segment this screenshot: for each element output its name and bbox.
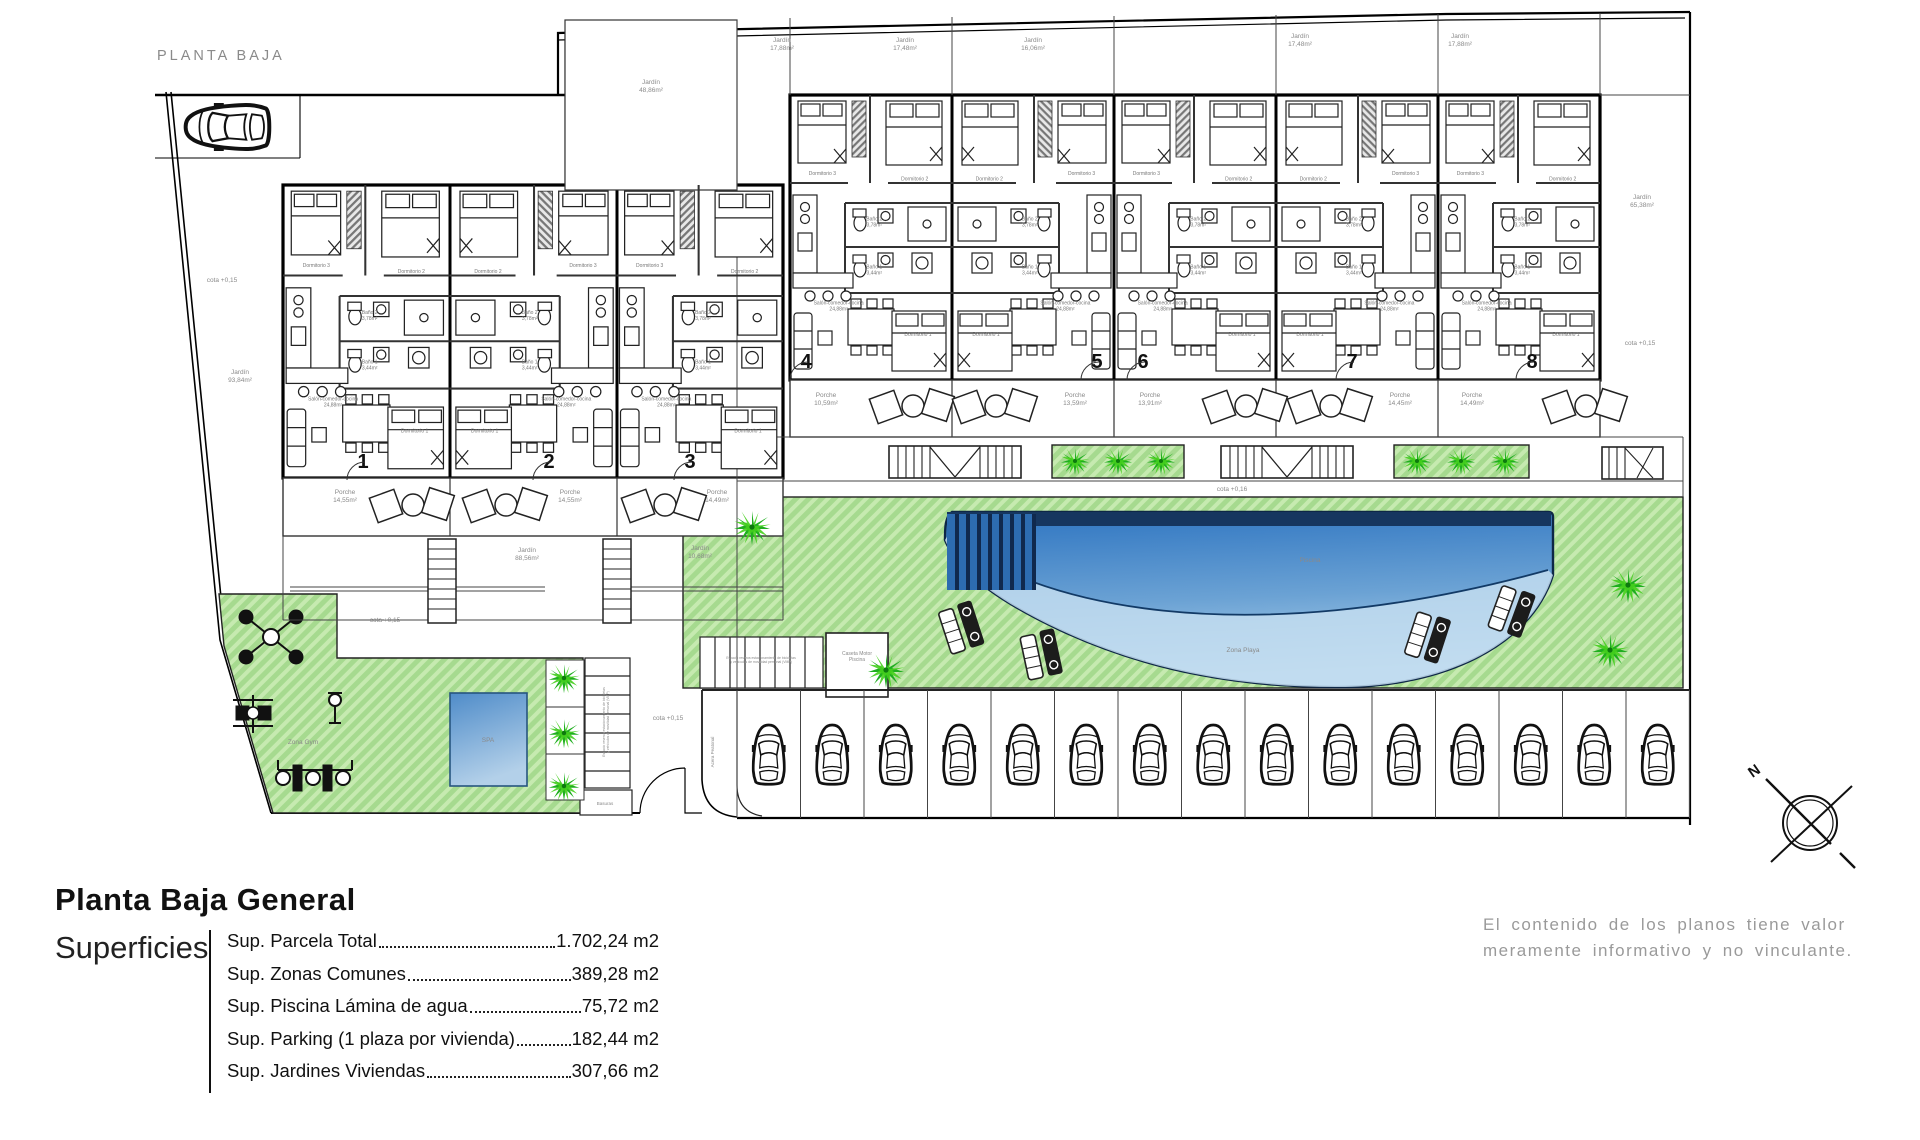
parked-car <box>1069 725 1103 784</box>
annotation-label: Jardín17,88m² <box>770 37 795 52</box>
room-label: Baño 23,78m² <box>1190 216 1206 228</box>
superficies-item: Sup. Piscina Lámina de agua75,72 m2 <box>227 995 659 1017</box>
superficies-list: Sup. Parcela Total 1.702,24 m2Sup. Zonas… <box>227 928 659 1093</box>
annotation-label: Jardín17,48m² <box>893 37 918 52</box>
parked-car <box>879 725 913 784</box>
garden-stair <box>428 539 456 623</box>
parked-car <box>752 725 786 784</box>
room-label: Dormitorio 2 <box>731 269 758 275</box>
room-label: Dormitorio 2 <box>901 177 928 183</box>
room-label: Dormitorio 3 <box>1457 171 1484 177</box>
parked-car <box>1323 725 1357 784</box>
superficies-item: Sup. Jardines Viviendas307,66 m2 <box>227 1060 659 1082</box>
room-label: Dormitorio 2 <box>1225 177 1252 183</box>
superficies-heading: Superficies <box>55 928 205 1093</box>
annotation-label: cota +0,15 <box>207 277 238 284</box>
annotation-label: Porche14,49m² <box>1460 392 1485 407</box>
annotation-label: Zona Playa <box>1227 647 1260 654</box>
room-label: Dormitorio 3 <box>1392 171 1419 177</box>
room-label: Baño 23,78m² <box>522 310 538 322</box>
annotation-label: Espacio reserva estacionamiento de bicic… <box>726 656 796 664</box>
annotation-label: Jardín16,06m² <box>1021 37 1046 52</box>
room-label: Dormitorio 3 <box>1133 171 1160 177</box>
room-label: Dormitorio 3 <box>809 171 836 177</box>
parked-car <box>1450 725 1484 784</box>
superficies-item-label: Sup. Parking (1 plaza por vivienda) <box>227 1028 515 1050</box>
room-label: Baño 23,78m² <box>362 310 378 322</box>
room-label: Dormitorio 1 <box>734 429 761 435</box>
room-label: Baño 23,78m² <box>1346 216 1362 228</box>
room-label: Dormitorio 1 <box>904 332 931 338</box>
garden-common-left <box>219 594 583 813</box>
annotation-label: Jardín17,88m² <box>1448 33 1473 48</box>
superficies-item-label: Sup. Jardines Viviendas <box>227 1060 425 1082</box>
dotted-leader <box>427 1076 570 1078</box>
annotation-label: Espacio reserva estacionamiento de bicic… <box>602 687 610 757</box>
room-label: Dormitorio 2 <box>474 269 501 275</box>
dotted-leader <box>470 1011 581 1013</box>
annotation-label: cota +0,15 <box>653 715 684 722</box>
superficies-item-value: 1.702,24 m2 <box>556 930 659 952</box>
plan-title: Planta Baja General <box>55 882 659 918</box>
annotation-label: Porche14,55m² <box>333 489 358 504</box>
room-label: Dormitorio 3 <box>636 263 663 269</box>
superficies-item-label: Sup. Piscina Lámina de agua <box>227 995 468 1017</box>
room-label: Baño 13,44m² <box>1346 265 1362 277</box>
parked-car <box>815 725 849 784</box>
annotation-label: Porche10,59m² <box>814 392 839 407</box>
room-label: Dormitorio 3 <box>569 263 596 269</box>
parked-car <box>1196 725 1230 784</box>
divider <box>209 930 211 1093</box>
annotation-label: Basuras <box>597 801 614 806</box>
room-label: Baño 13,44m² <box>1190 265 1206 277</box>
parked-car <box>1133 725 1167 784</box>
annotation-label: Zona Gym <box>288 739 318 746</box>
room-label: Dormitorio 2 <box>1300 177 1327 183</box>
parked-car <box>1641 725 1675 784</box>
parked-car <box>1577 725 1611 784</box>
annotation-label: Porche14,55m² <box>558 489 583 504</box>
room-label: Dormitorio 3 <box>303 263 330 269</box>
plan-caption: PLANTA BAJA <box>157 48 285 64</box>
title-block: Planta Baja General Superficies Sup. Par… <box>55 882 659 1093</box>
disclaimer-line-2: meramente informativo y no vinculante. <box>1483 938 1873 964</box>
room-label: Dormitorio 1 <box>1296 332 1323 338</box>
superficies-item: Sup. Parcela Total 1.702,24 m2 <box>227 930 659 952</box>
parked-car <box>1387 725 1421 784</box>
annotation-label: Acera Peatonal <box>710 737 715 768</box>
room-label: Baño 13,44m² <box>522 360 538 372</box>
room-label: Baño 23,78m² <box>1022 216 1038 228</box>
annotation-label: Piscina <box>1300 557 1321 564</box>
parked-car <box>1514 725 1548 784</box>
superficies-item-value: 75,72 m2 <box>582 995 659 1017</box>
dotted-leader <box>517 1044 571 1046</box>
room-label: Dormitorio 1 <box>1552 332 1579 338</box>
annotation-label: cota +0,15 <box>370 617 401 624</box>
pool-steps <box>947 514 1035 590</box>
pool-motor-shed <box>826 633 888 697</box>
room-label: Baño 23,78m² <box>866 216 882 228</box>
superficies-item-value: 389,28 m2 <box>572 963 659 985</box>
annotation-label: cota +0,16 <box>1217 486 1248 493</box>
car-icon <box>186 103 270 151</box>
room-label: Baño 23,78m² <box>695 310 711 322</box>
parked-car <box>942 725 976 784</box>
room-label: Baño 13,44m² <box>1022 265 1038 277</box>
superficies-item-label: Sup. Parcela Total <box>227 930 377 952</box>
parked-car <box>1006 725 1040 784</box>
annotation-label: SPA <box>482 737 495 744</box>
room-label: Baño 13,44m² <box>866 265 882 277</box>
annotation-label: Jardín88,56m² <box>515 547 540 562</box>
annotation-label: cota +0,15 <box>1625 340 1656 347</box>
floor-plan-page: Dormitorio 3Dormitorio 2Baño 23,78m²Baño… <box>0 0 1920 1140</box>
superficies-item-value: 182,44 m2 <box>572 1028 659 1050</box>
parked-car <box>1260 725 1294 784</box>
room-label: Dormitorio 1 <box>972 332 999 338</box>
superficies-item: Sup. Zonas Comunes 389,28 m2 <box>227 963 659 985</box>
annotation-label: Porche14,49m² <box>705 489 730 504</box>
annotation-label: Porche13,59m² <box>1063 392 1088 407</box>
garden-stair <box>603 539 631 623</box>
dotted-leader <box>379 946 555 948</box>
disclaimer-note: El contenido de los planos tiene valor m… <box>1483 912 1873 965</box>
parked-car-entry <box>186 103 270 151</box>
room-label: Baño 13,44m² <box>1514 265 1530 277</box>
room-label: Dormitorio 2 <box>976 177 1003 183</box>
superficies-item-label: Sup. Zonas Comunes <box>227 963 406 985</box>
room-label: Baño 13,44m² <box>362 360 378 372</box>
annotation-label: Porche14,45m² <box>1388 392 1413 407</box>
superficies-item: Sup. Parking (1 plaza por vivienda)182,4… <box>227 1028 659 1050</box>
room-label: Baño 13,44m² <box>695 360 711 372</box>
room-label: Dormitorio 1 <box>471 429 498 435</box>
room-label: Dormitorio 1 <box>1228 332 1255 338</box>
room-label: Dormitorio 3 <box>1068 171 1095 177</box>
annotation-label: Jardín17,48m² <box>1288 33 1313 48</box>
disclaimer-line-1: El contenido de los planos tiene valor <box>1483 912 1873 938</box>
room-label: Dormitorio 2 <box>398 269 425 275</box>
annotation-label: Jardín93,84m² <box>228 369 253 384</box>
dotted-leader <box>408 979 571 981</box>
site-plan-drawing: Dormitorio 3Dormitorio 2Baño 23,78m²Baño… <box>0 0 1920 878</box>
annotation-label: Jardín65,38m² <box>1630 194 1655 209</box>
room-label: Baño 23,78m² <box>1514 216 1530 228</box>
annotation-label: Porche13,91m² <box>1138 392 1163 407</box>
room-label: Dormitorio 1 <box>401 429 428 435</box>
compass-north-label: N <box>1745 761 1764 781</box>
compass-rose <box>1766 779 1855 868</box>
room-label: Dormitorio 2 <box>1549 177 1576 183</box>
superficies-item-value: 307,66 m2 <box>572 1060 659 1082</box>
